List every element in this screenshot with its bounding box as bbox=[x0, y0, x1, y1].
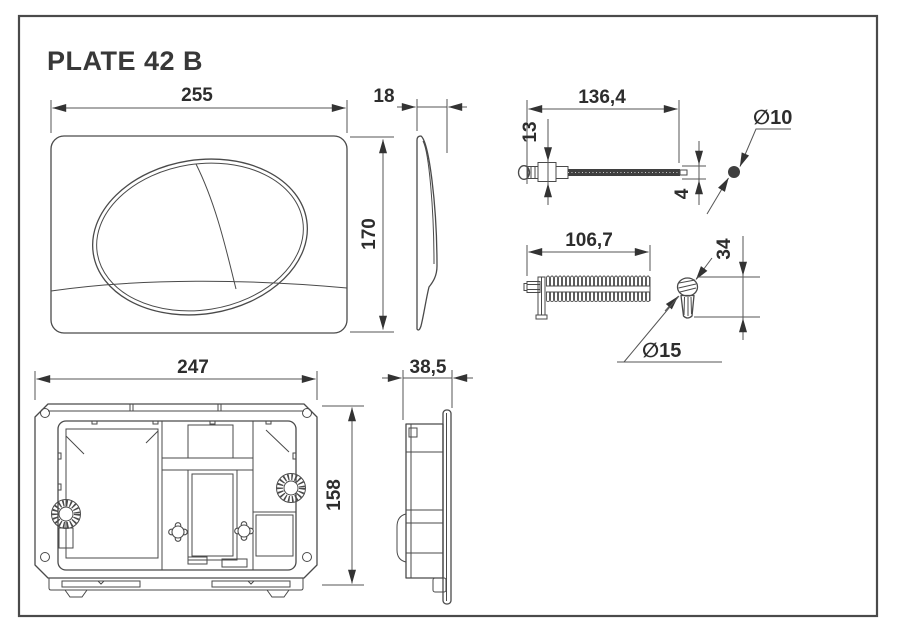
back-frame-nubs bbox=[58, 421, 296, 490]
knob-dome-hatching bbox=[679, 280, 697, 292]
dim-front-height: 170 bbox=[350, 137, 394, 332]
rod-teeth-top bbox=[546, 276, 650, 287]
dim-rack-label: 106,7 bbox=[565, 230, 613, 251]
rod-end-bracket bbox=[524, 277, 547, 319]
dim-back-depth: 38,5 bbox=[382, 357, 473, 420]
dim-front-depth-lines bbox=[417, 99, 447, 153]
dim-back-depth-label: 38,5 bbox=[410, 357, 447, 378]
front-side-view bbox=[417, 136, 437, 330]
wheel-inner bbox=[59, 507, 73, 521]
knob-diameter-arrow-lower bbox=[665, 297, 678, 312]
dim-pin-length-label: 136,4 bbox=[578, 87, 626, 108]
dim-back-width-extensions bbox=[35, 371, 317, 400]
threaded-rod-view bbox=[524, 276, 650, 320]
knob-diameter-label: ∅15 bbox=[642, 340, 681, 362]
dim-knob-height-label: 34 bbox=[714, 238, 735, 260]
dim-pin-head-label: 13 bbox=[520, 121, 541, 142]
dim-front-width: 255 bbox=[51, 85, 347, 133]
drawing-border bbox=[19, 16, 877, 616]
plate-42b-technical-drawing: PLATE 42 B 255 170 18 bbox=[0, 0, 900, 636]
dim-back-width-label: 247 bbox=[177, 357, 209, 378]
page-title: PLATE 42 B bbox=[47, 46, 203, 76]
dim-front-height-label: 170 bbox=[359, 218, 380, 250]
dim-front-depth-label: 18 bbox=[373, 86, 394, 107]
dim-rack-length: 106,7 bbox=[527, 230, 650, 276]
side-body-details bbox=[406, 424, 443, 578]
button-ellipse-inner bbox=[86, 149, 314, 326]
side-body-outline bbox=[406, 424, 443, 578]
knob-stem-ribs bbox=[684, 297, 692, 316]
corner-hole bbox=[303, 409, 312, 418]
wheel-inner bbox=[284, 481, 298, 495]
dim-back-width: 247 bbox=[35, 357, 317, 400]
back-side-view bbox=[397, 410, 451, 604]
back-inner-frame bbox=[58, 421, 296, 570]
pin-end-view: ∅10 bbox=[707, 107, 792, 214]
pin-diameter-arrow-lower bbox=[707, 178, 729, 214]
pin-diameter-label: ∅10 bbox=[753, 107, 792, 129]
corner-hole bbox=[41, 553, 50, 562]
corner-hole bbox=[41, 409, 50, 418]
back-bottom-rail bbox=[49, 578, 303, 597]
back-view bbox=[35, 404, 317, 597]
screw-boss-center bbox=[169, 523, 188, 542]
dim-knob-height: 34 bbox=[694, 236, 760, 340]
back-plate-outline bbox=[35, 404, 317, 578]
dim-front-depth: 18 bbox=[373, 86, 467, 153]
adjustment-knob-view: ∅15 bbox=[617, 258, 722, 362]
fixing-pin-view bbox=[519, 163, 688, 182]
pin-diameter-leader bbox=[740, 129, 791, 167]
pin-tip bbox=[680, 170, 687, 175]
dim-back-height-label: 158 bbox=[324, 479, 345, 511]
knob-dome bbox=[678, 278, 698, 296]
drawing-sheet: PLATE 42 B 255 170 18 bbox=[0, 0, 900, 636]
adjuster-wheel-right bbox=[277, 474, 306, 503]
knob-diameter-arrow-upper bbox=[696, 258, 712, 280]
side-bottom-foot bbox=[433, 578, 446, 592]
pin-end-circle bbox=[728, 166, 740, 178]
front-view bbox=[51, 136, 347, 333]
dim-front-width-label: 255 bbox=[181, 85, 213, 106]
dim-back-height: 158 bbox=[322, 406, 364, 585]
rod-teeth-bottom bbox=[546, 292, 650, 302]
back-internal-structure bbox=[59, 421, 296, 570]
dim-pin-shaft-label: 4 bbox=[672, 188, 693, 199]
back-top-rim bbox=[48, 404, 304, 411]
corner-hole bbox=[303, 553, 312, 562]
side-left-bracket bbox=[397, 514, 406, 562]
